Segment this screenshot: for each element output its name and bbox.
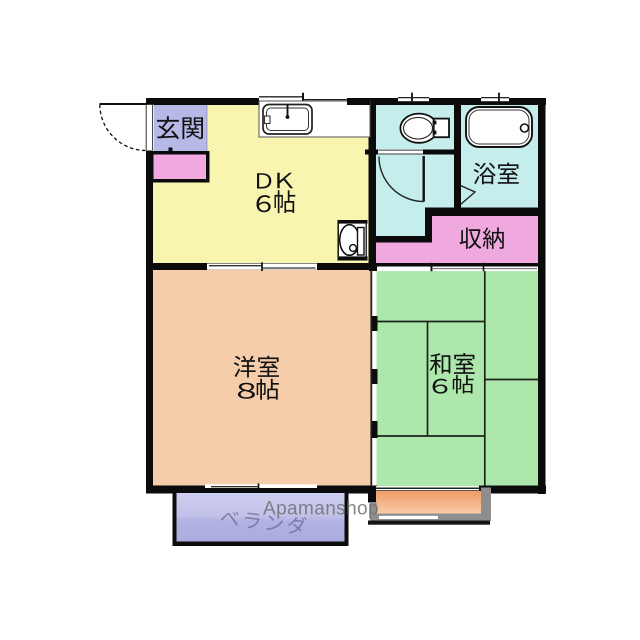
svg-text:Apamanshop: Apamanshop [263,498,379,519]
